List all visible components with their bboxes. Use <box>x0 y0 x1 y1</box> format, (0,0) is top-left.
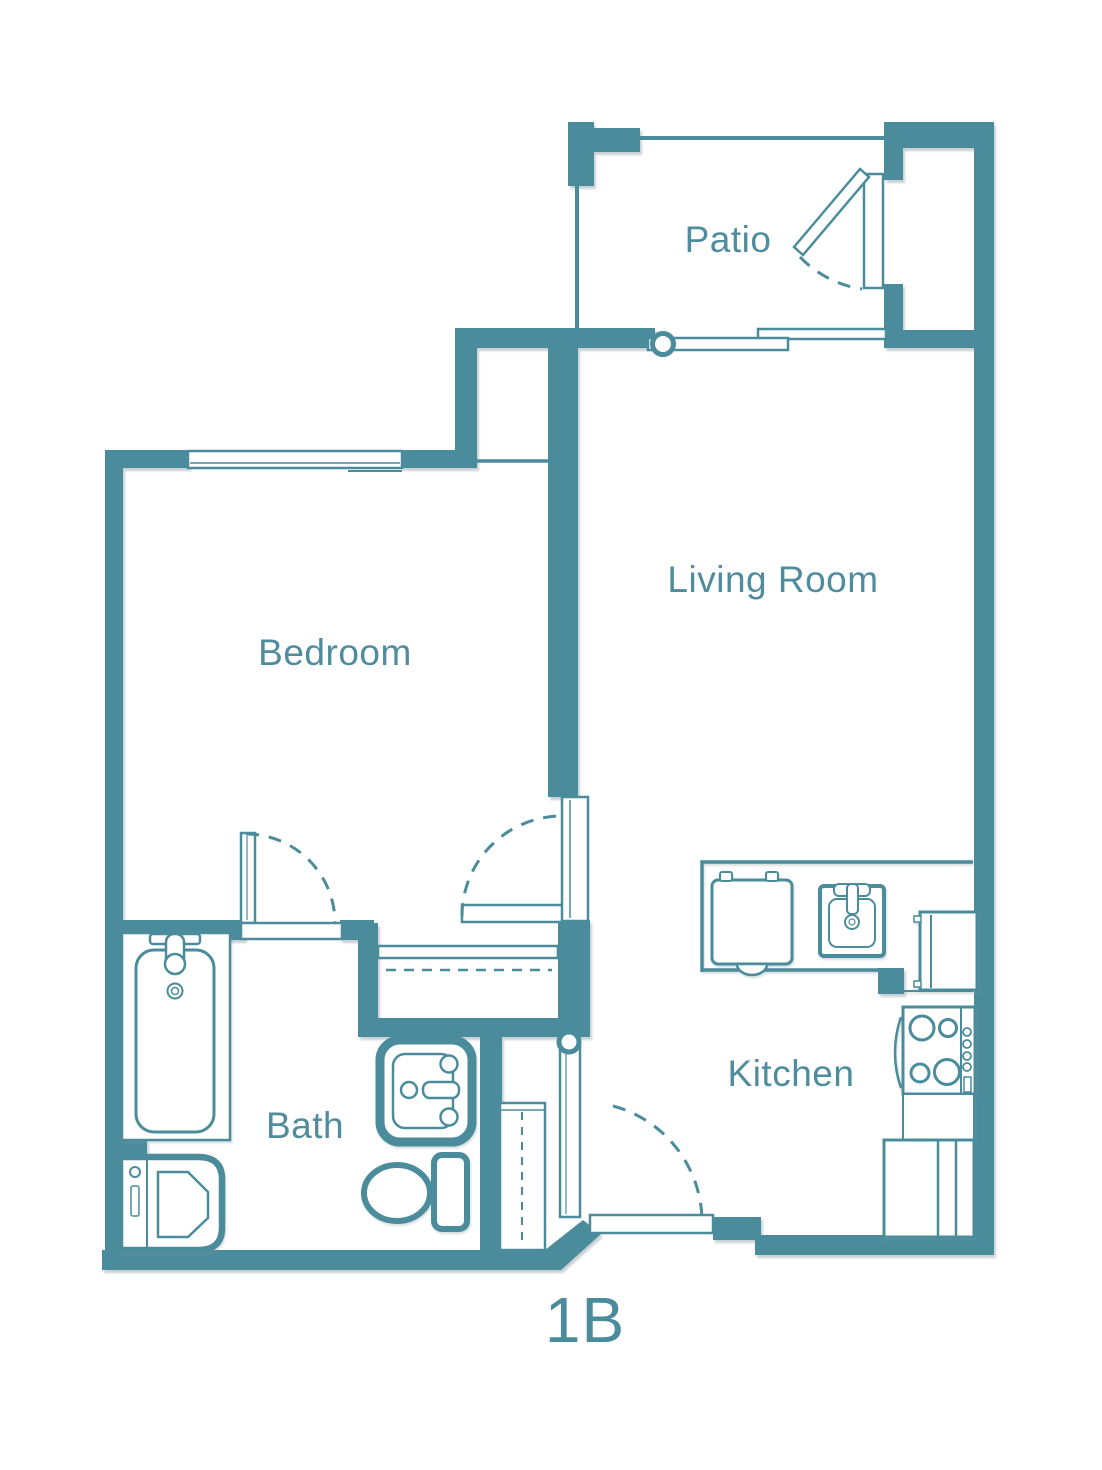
hall-closet <box>378 946 558 970</box>
bedroom-door-swing-arc <box>462 816 562 916</box>
plan-title: 1B <box>545 1284 625 1356</box>
entry-right-wall-block <box>713 1217 761 1240</box>
refrigerator <box>914 912 977 990</box>
bathroom-door-threshold <box>241 923 342 939</box>
bath-label: Bath <box>266 1105 344 1146</box>
patio-corner-post <box>568 122 594 186</box>
bedroom-living-wall <box>548 348 578 797</box>
patio-door-leaf <box>794 169 869 255</box>
oven-door-arc <box>895 1017 901 1088</box>
hall-closet-bottom-wall <box>358 1018 590 1037</box>
walls <box>102 122 994 1270</box>
entry-door-threshold <box>590 1215 713 1233</box>
entry-door-leaf <box>560 1045 580 1217</box>
entry-door-hinge <box>559 1032 579 1052</box>
dishwasher <box>712 872 792 975</box>
bath-right-wall <box>480 1037 502 1252</box>
sink-faucet <box>423 1082 459 1098</box>
bathroom-door <box>241 833 342 939</box>
storage-closet-left-wall-upper <box>884 148 903 180</box>
patio-door-swing-arc <box>800 257 862 289</box>
toilet-bowl <box>364 1165 430 1221</box>
kitchen-sink <box>820 884 884 956</box>
base-cabinet <box>884 1094 974 1237</box>
entry-door-swing-arc <box>613 1106 702 1222</box>
burner <box>911 1064 929 1082</box>
patio-door-frame <box>864 174 883 288</box>
kitchen-label: Kitchen <box>728 1053 855 1094</box>
bedroom-label: Bedroom <box>258 632 412 673</box>
entry-area <box>500 1032 713 1250</box>
patio-bottom-wall <box>455 328 655 348</box>
sliding-glass-door <box>648 329 886 355</box>
burner <box>935 1060 960 1085</box>
hall-closet-front <box>378 946 558 958</box>
sliding-door-pull <box>653 334 674 355</box>
living-room-label: Living Room <box>667 559 878 600</box>
thin-walls <box>477 138 884 461</box>
patio-label: Patio <box>685 219 772 260</box>
bathroom-door-leaf <box>241 833 255 923</box>
bedroom-top-wall-right <box>400 450 477 468</box>
toilet <box>364 1155 467 1229</box>
floor-plan-1b: Patio Living Room Bedroom Bath Kitchen 1… <box>0 0 1102 1470</box>
patio-swing-door <box>794 169 883 289</box>
bedroom-door-threshold <box>462 905 567 922</box>
bedroom-door <box>462 797 588 922</box>
shaft-left-stub-wall <box>455 348 477 452</box>
stove-cooktop <box>895 1007 975 1094</box>
kitchen-counter-corner-block <box>878 968 904 994</box>
washer-dryer <box>120 1157 222 1250</box>
bathroom-sink-vanity <box>380 1040 472 1142</box>
storage-closet-bottom-wall <box>884 330 979 348</box>
bathtub <box>122 933 230 1140</box>
patio-corner-arm <box>594 128 640 152</box>
bathroom-door-swing-arc <box>246 834 335 923</box>
burner <box>940 1020 957 1037</box>
left-exterior-wall <box>105 450 123 1250</box>
toilet-tank <box>434 1155 467 1229</box>
bedroom-door-leaf <box>562 797 588 921</box>
burner <box>910 1016 934 1040</box>
bedroom-window <box>188 451 402 471</box>
right-exterior-wall <box>974 122 994 1253</box>
